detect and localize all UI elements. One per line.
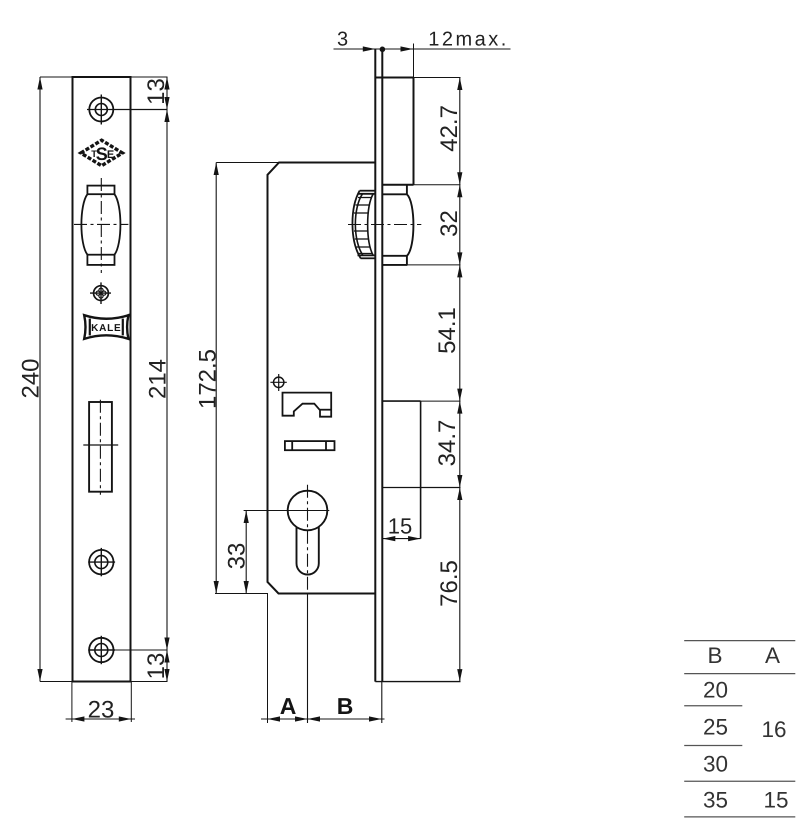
svg-text:KALE: KALE <box>91 323 121 334</box>
svg-text:13: 13 <box>143 653 170 680</box>
svg-text:214: 214 <box>145 359 172 399</box>
svg-text:54.1: 54.1 <box>434 307 461 354</box>
svg-text:42.7: 42.7 <box>436 105 463 152</box>
svg-text:240: 240 <box>18 358 45 398</box>
svg-text:32: 32 <box>436 210 463 237</box>
svg-text:E: E <box>107 149 114 161</box>
svg-text:A: A <box>765 643 780 668</box>
svg-text:33: 33 <box>224 543 251 570</box>
svg-text:25: 25 <box>703 715 728 740</box>
svg-text:20: 20 <box>703 677 728 702</box>
svg-text:15: 15 <box>763 787 788 812</box>
svg-text:76.5: 76.5 <box>436 560 463 607</box>
svg-text:35: 35 <box>703 787 728 812</box>
svg-text:172.5: 172.5 <box>195 349 222 409</box>
svg-text:15: 15 <box>388 514 412 539</box>
svg-text:B: B <box>707 643 722 668</box>
svg-text:12max.: 12max. <box>428 29 509 51</box>
svg-text:B: B <box>337 693 354 719</box>
svg-text:13: 13 <box>143 78 170 105</box>
svg-text:30: 30 <box>703 752 728 777</box>
svg-text:23: 23 <box>88 697 115 724</box>
svg-text:34.7: 34.7 <box>434 420 461 467</box>
svg-text:3: 3 <box>337 29 348 51</box>
svg-text:A: A <box>280 693 297 719</box>
svg-text:16: 16 <box>761 717 786 742</box>
